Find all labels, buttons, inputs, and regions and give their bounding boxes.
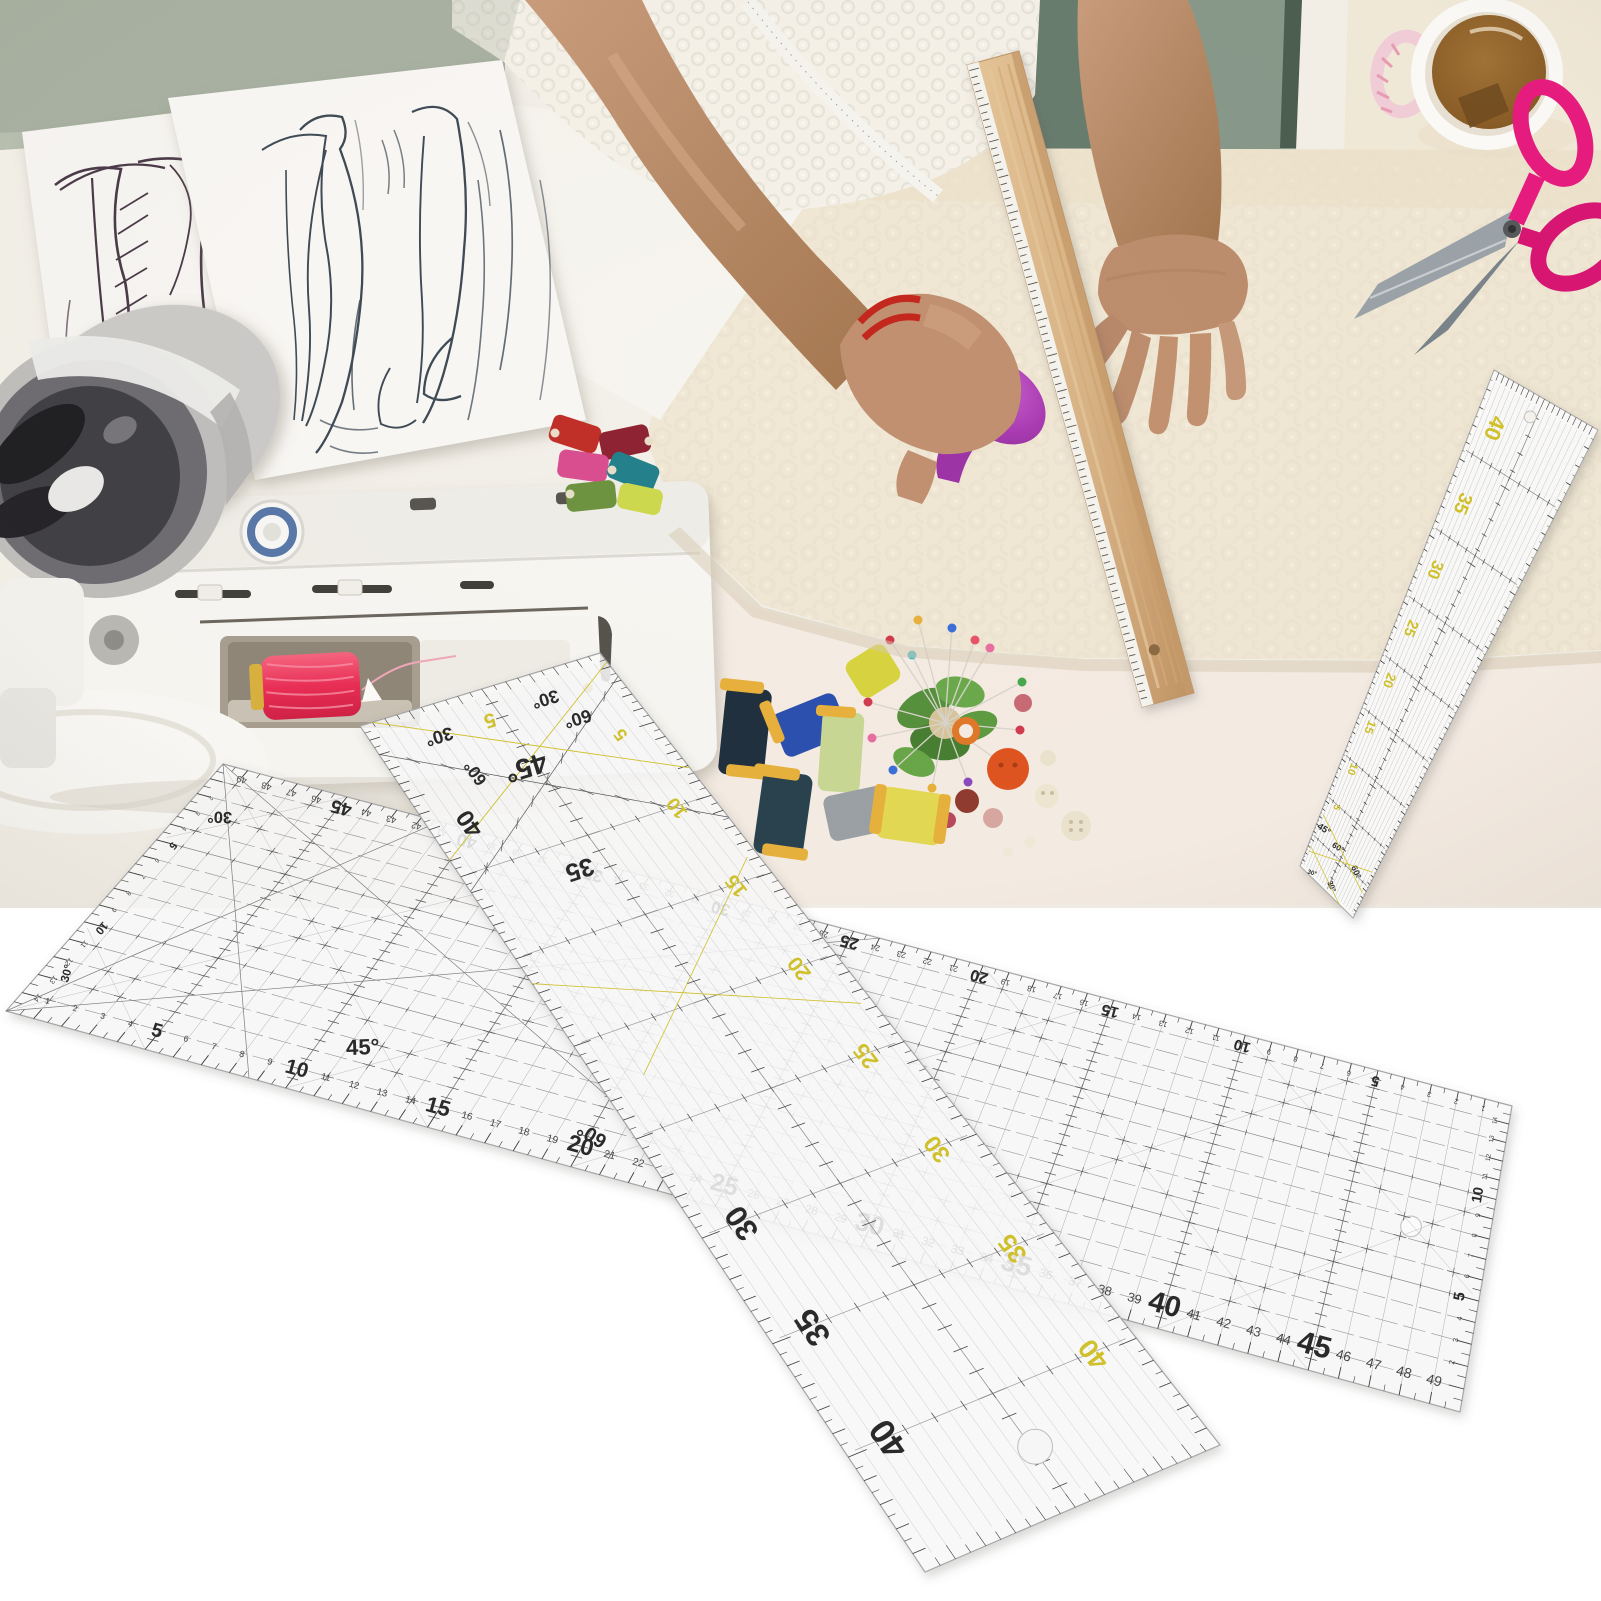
svg-text:45°: 45° bbox=[346, 1034, 380, 1060]
svg-text:10: 10 bbox=[1469, 1186, 1488, 1204]
svg-text:30°: 30° bbox=[207, 807, 232, 826]
